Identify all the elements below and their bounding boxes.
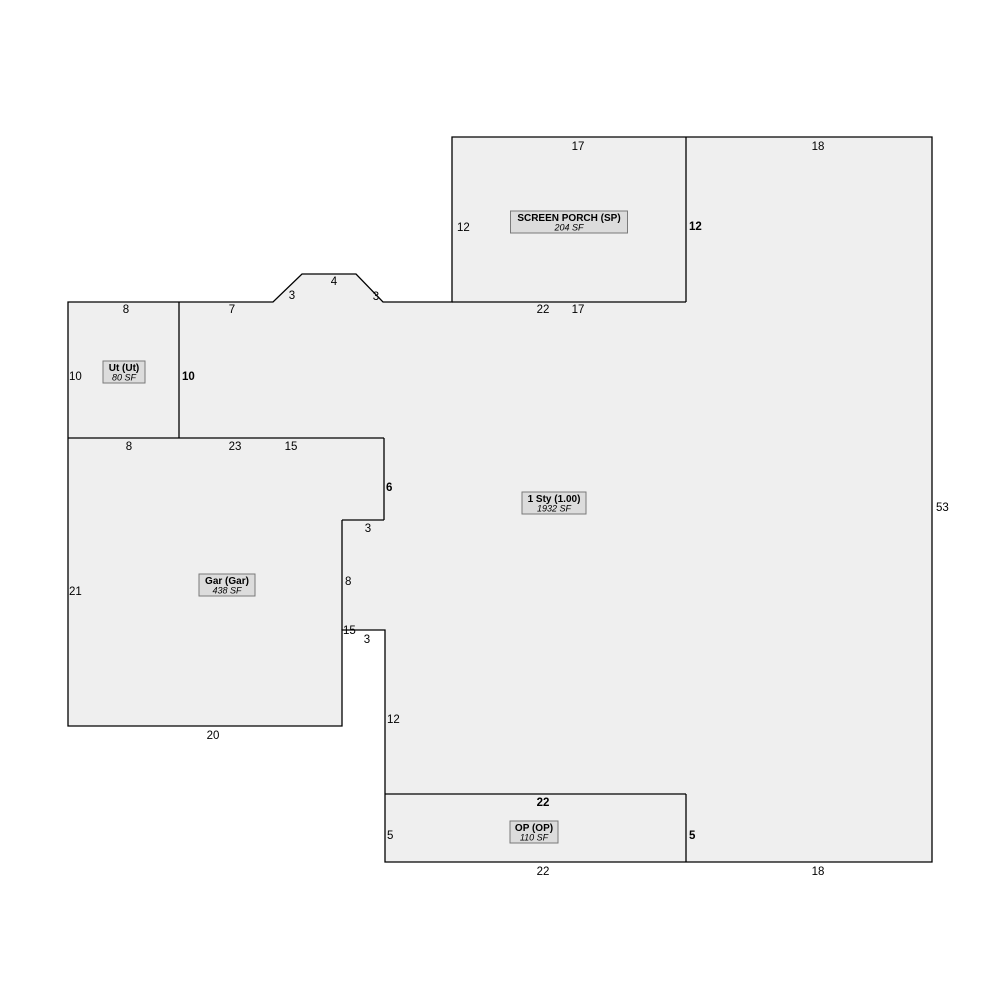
dimension-label: 53 <box>936 502 949 514</box>
dimension-label: 8 <box>123 304 129 316</box>
area-sf-label: 110 SF <box>520 833 549 843</box>
dimension-label: 3 <box>373 291 379 303</box>
dimension-label: 21 <box>69 586 82 598</box>
dimension-label: 4 <box>331 276 338 288</box>
building-outline <box>68 137 932 862</box>
floor-plan-sketch: 1718121222178734310108231563821153122053… <box>0 0 1000 1000</box>
dimension-label: 10 <box>182 371 195 383</box>
dimension-label: 15 <box>285 441 298 453</box>
dimension-label: 3 <box>365 523 371 535</box>
dimension-label: 10 <box>69 371 82 383</box>
dimension-label: 17 <box>572 304 585 316</box>
area-sf-label: 80 SF <box>112 373 137 383</box>
dimension-label: 20 <box>207 730 220 742</box>
dimension-label: 22 <box>537 866 550 878</box>
area-sf-label: 1932 SF <box>537 504 572 514</box>
dimension-label: 18 <box>812 141 825 153</box>
area-sf-label: 204 SF <box>553 223 584 233</box>
dimension-label: 3 <box>289 290 295 302</box>
dimension-label: 22 <box>537 797 550 809</box>
dimension-label: 8 <box>345 576 351 588</box>
dimension-label: 5 <box>689 830 696 842</box>
dimension-label: 18 <box>812 866 825 878</box>
dimension-label: 3 <box>364 634 370 646</box>
dimension-label: 12 <box>457 222 470 234</box>
dimension-label: 6 <box>386 482 392 494</box>
dimension-label: 22 <box>537 304 550 316</box>
area-sf-label: 438 SF <box>212 586 242 596</box>
dimension-label: 12 <box>689 221 702 233</box>
dimension-label: 23 <box>229 441 242 453</box>
dimension-label: 8 <box>126 441 132 453</box>
sketch-canvas: 1718121222178734310108231563821153122053… <box>0 0 1000 1000</box>
dimension-label: 15 <box>343 625 356 637</box>
dimension-label: 7 <box>229 304 235 316</box>
dimension-label: 17 <box>572 141 585 153</box>
dimension-label: 5 <box>387 830 393 842</box>
dimension-label: 12 <box>387 714 400 726</box>
